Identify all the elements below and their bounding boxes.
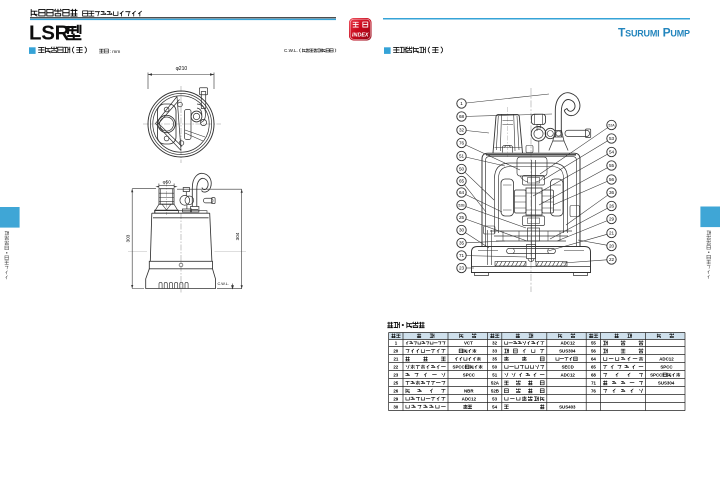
svg-text:52B: 52B [491, 388, 499, 393]
svg-text:304: 304 [235, 232, 240, 240]
svg-text:22: 22 [609, 257, 615, 262]
svg-text:21: 21 [393, 357, 398, 362]
svg-text:65: 65 [459, 179, 465, 184]
svg-text:INDEX: INDEX [352, 32, 369, 38]
svg-text:SECD: SECD [562, 364, 574, 369]
svg-text:26: 26 [609, 204, 615, 209]
svg-text:22: 22 [393, 364, 398, 369]
svg-text:71: 71 [459, 253, 465, 258]
svg-text:50: 50 [492, 364, 497, 369]
svg-text:30: 30 [393, 404, 398, 409]
svg-text:35: 35 [492, 357, 497, 362]
svg-text:68: 68 [591, 372, 596, 377]
svg-text:35: 35 [459, 241, 465, 246]
svg-text:23: 23 [459, 266, 465, 271]
svg-text:ADC12: ADC12 [560, 372, 575, 377]
svg-text:1: 1 [460, 101, 463, 106]
svg-text:52A: 52A [491, 380, 500, 385]
svg-text:SUS304: SUS304 [559, 349, 576, 354]
svg-text:56: 56 [591, 349, 596, 354]
svg-text:φ50: φ50 [163, 179, 172, 184]
svg-text:VCT: VCT [464, 341, 473, 346]
svg-text:36: 36 [609, 190, 615, 195]
svg-text:71: 71 [591, 380, 596, 385]
svg-text:33: 33 [492, 349, 497, 354]
svg-text:53: 53 [609, 136, 615, 141]
svg-text:25: 25 [459, 215, 465, 220]
svg-text:25: 25 [393, 380, 398, 385]
svg-text:ADC12: ADC12 [560, 341, 575, 346]
svg-text:SPCC: SPCC [660, 364, 673, 369]
svg-text:: mm: : mm [110, 50, 121, 55]
svg-text:55: 55 [609, 163, 615, 168]
svg-text:φ210: φ210 [176, 66, 188, 72]
svg-text:53: 53 [492, 396, 497, 401]
svg-text:SUS304: SUS304 [658, 380, 675, 385]
svg-text:64: 64 [591, 357, 596, 362]
svg-text:54: 54 [492, 404, 497, 409]
svg-text:51: 51 [459, 154, 465, 159]
svg-text:20: 20 [609, 244, 615, 249]
svg-text:26: 26 [393, 388, 398, 393]
svg-text:56: 56 [609, 177, 615, 182]
svg-text:32: 32 [492, 341, 497, 346]
svg-text:C.W.L.: C.W.L. [218, 282, 229, 286]
svg-text:SPCC: SPCC [463, 372, 476, 377]
svg-text:32: 32 [459, 128, 465, 133]
svg-text:55: 55 [591, 341, 596, 346]
svg-text:303: 303 [126, 234, 131, 242]
svg-text:29: 29 [609, 217, 615, 222]
svg-text:65: 65 [591, 364, 596, 369]
svg-text:52B: 52B [458, 203, 465, 207]
svg-text:SUS403: SUS403 [559, 404, 576, 409]
svg-text:1: 1 [395, 341, 398, 346]
svg-text:20: 20 [393, 349, 398, 354]
svg-text:64: 64 [459, 190, 465, 195]
svg-text:ADC12: ADC12 [659, 357, 674, 362]
svg-text:TSURUMI PUMP: TSURUMI PUMP [618, 26, 690, 40]
svg-text:30: 30 [459, 228, 465, 233]
svg-text:LSR: LSR [29, 22, 70, 45]
svg-text:C.W.L.: C.W.L. [284, 48, 298, 53]
svg-text:76: 76 [591, 388, 596, 393]
svg-text:50: 50 [459, 167, 465, 172]
svg-text:ADC12: ADC12 [462, 396, 477, 401]
svg-text:29: 29 [393, 396, 398, 401]
svg-text:51: 51 [492, 372, 497, 377]
svg-text:23: 23 [393, 372, 398, 377]
svg-text:76: 76 [459, 141, 465, 146]
svg-text:68: 68 [459, 114, 465, 119]
svg-text:54: 54 [609, 150, 615, 155]
svg-text:52A: 52A [608, 123, 615, 127]
svg-text:NBR: NBR [464, 388, 474, 393]
svg-text:21: 21 [609, 231, 615, 236]
